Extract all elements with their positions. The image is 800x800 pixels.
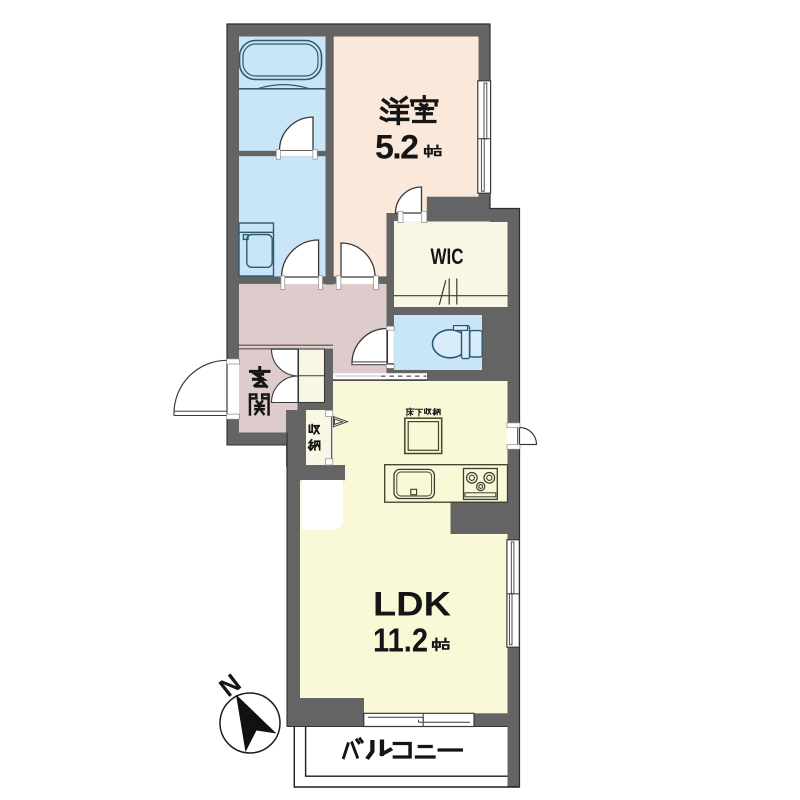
svg-text:LDK: LDK <box>373 586 451 624</box>
svg-text:5.2: 5.2 <box>375 129 419 167</box>
svg-text:11.2: 11.2 <box>373 622 428 659</box>
svg-text:WIC: WIC <box>431 244 464 269</box>
